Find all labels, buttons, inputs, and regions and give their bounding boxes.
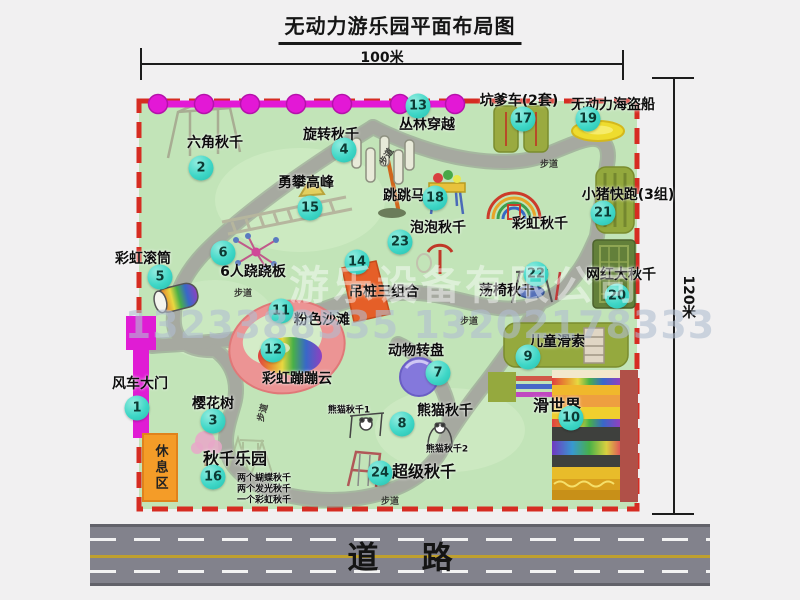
label-jungle-crossing: 丛林穿越 bbox=[399, 114, 455, 134]
marker-19: 19 bbox=[576, 107, 601, 132]
label-rainbow-swing: 彩虹秋千 bbox=[512, 213, 568, 233]
label-hanging-pile: 吊桩三组合 bbox=[349, 281, 419, 301]
label-climbing-peak: 勇攀高峰 bbox=[278, 172, 334, 192]
label-big-swing: 网红大秋千 bbox=[586, 264, 656, 284]
marker-4: 4 bbox=[332, 138, 357, 163]
marker-13: 13 bbox=[406, 94, 431, 119]
marker-8: 8 bbox=[390, 412, 415, 437]
marker-20: 20 bbox=[605, 284, 630, 309]
marker-6: 6 bbox=[211, 241, 236, 266]
swing-park-note-3: 一个彩虹秋千 bbox=[237, 493, 291, 506]
label-super-swing: 超级秋千 bbox=[392, 458, 456, 482]
label-panda-swing-1: 熊猫秋千1 bbox=[328, 403, 370, 416]
marker-16: 16 bbox=[201, 465, 226, 490]
label-animal-turntable: 动物转盘 bbox=[388, 340, 444, 360]
label-windmill-gate: 风车大门 bbox=[112, 373, 168, 393]
marker-2: 2 bbox=[189, 156, 214, 181]
marker-12: 12 bbox=[261, 338, 286, 363]
label-panda-swing: 熊猫秋千 bbox=[417, 400, 473, 420]
trail-label: 步道 bbox=[460, 314, 478, 327]
label-pink-beach: 粉色沙滩 bbox=[294, 309, 350, 329]
marker-14: 14 bbox=[345, 250, 370, 275]
label-seesaw: 6人跷跷板 bbox=[220, 261, 286, 281]
trail-label: 步道 bbox=[381, 494, 399, 507]
label-rainbow-cloud: 彩虹蹦蹦云 bbox=[262, 368, 332, 388]
label-panda-swing-2: 熊猫秋千2 bbox=[426, 442, 468, 455]
marker-11: 11 bbox=[269, 299, 294, 324]
marker-23: 23 bbox=[388, 230, 413, 255]
marker-7: 7 bbox=[426, 361, 451, 386]
marker-5: 5 bbox=[148, 265, 173, 290]
marker-21: 21 bbox=[591, 201, 616, 226]
height-dimension-label: 120米 bbox=[678, 275, 698, 318]
label-jumping-horse: 跳跳马 bbox=[383, 185, 425, 205]
trail-label: 步道 bbox=[234, 286, 252, 299]
label-pig-run: 小猪快跑(3组) bbox=[582, 184, 675, 204]
label-bubble-swing: 泡泡秋千 bbox=[410, 217, 466, 237]
marker-18: 18 bbox=[423, 186, 448, 211]
marker-24: 24 bbox=[368, 461, 393, 486]
road-label: 道 路 bbox=[347, 533, 452, 578]
marker-3: 3 bbox=[201, 409, 226, 434]
label-hexagon-swing: 六角秋千 bbox=[187, 132, 243, 152]
marker-9: 9 bbox=[516, 345, 541, 370]
marker-22: 22 bbox=[524, 262, 549, 287]
marker-17: 17 bbox=[511, 107, 536, 132]
trail-label: 步道 bbox=[540, 157, 558, 170]
marker-1: 1 bbox=[125, 396, 150, 421]
marker-10: 10 bbox=[559, 406, 584, 431]
rest-area: 休息区 bbox=[142, 433, 178, 502]
width-dimension-label: 100米 bbox=[360, 47, 403, 67]
road: 道 路 bbox=[90, 524, 710, 586]
park-layout-map: 无动力游乐园平面布局图 bbox=[0, 0, 800, 600]
marker-15: 15 bbox=[298, 196, 323, 221]
